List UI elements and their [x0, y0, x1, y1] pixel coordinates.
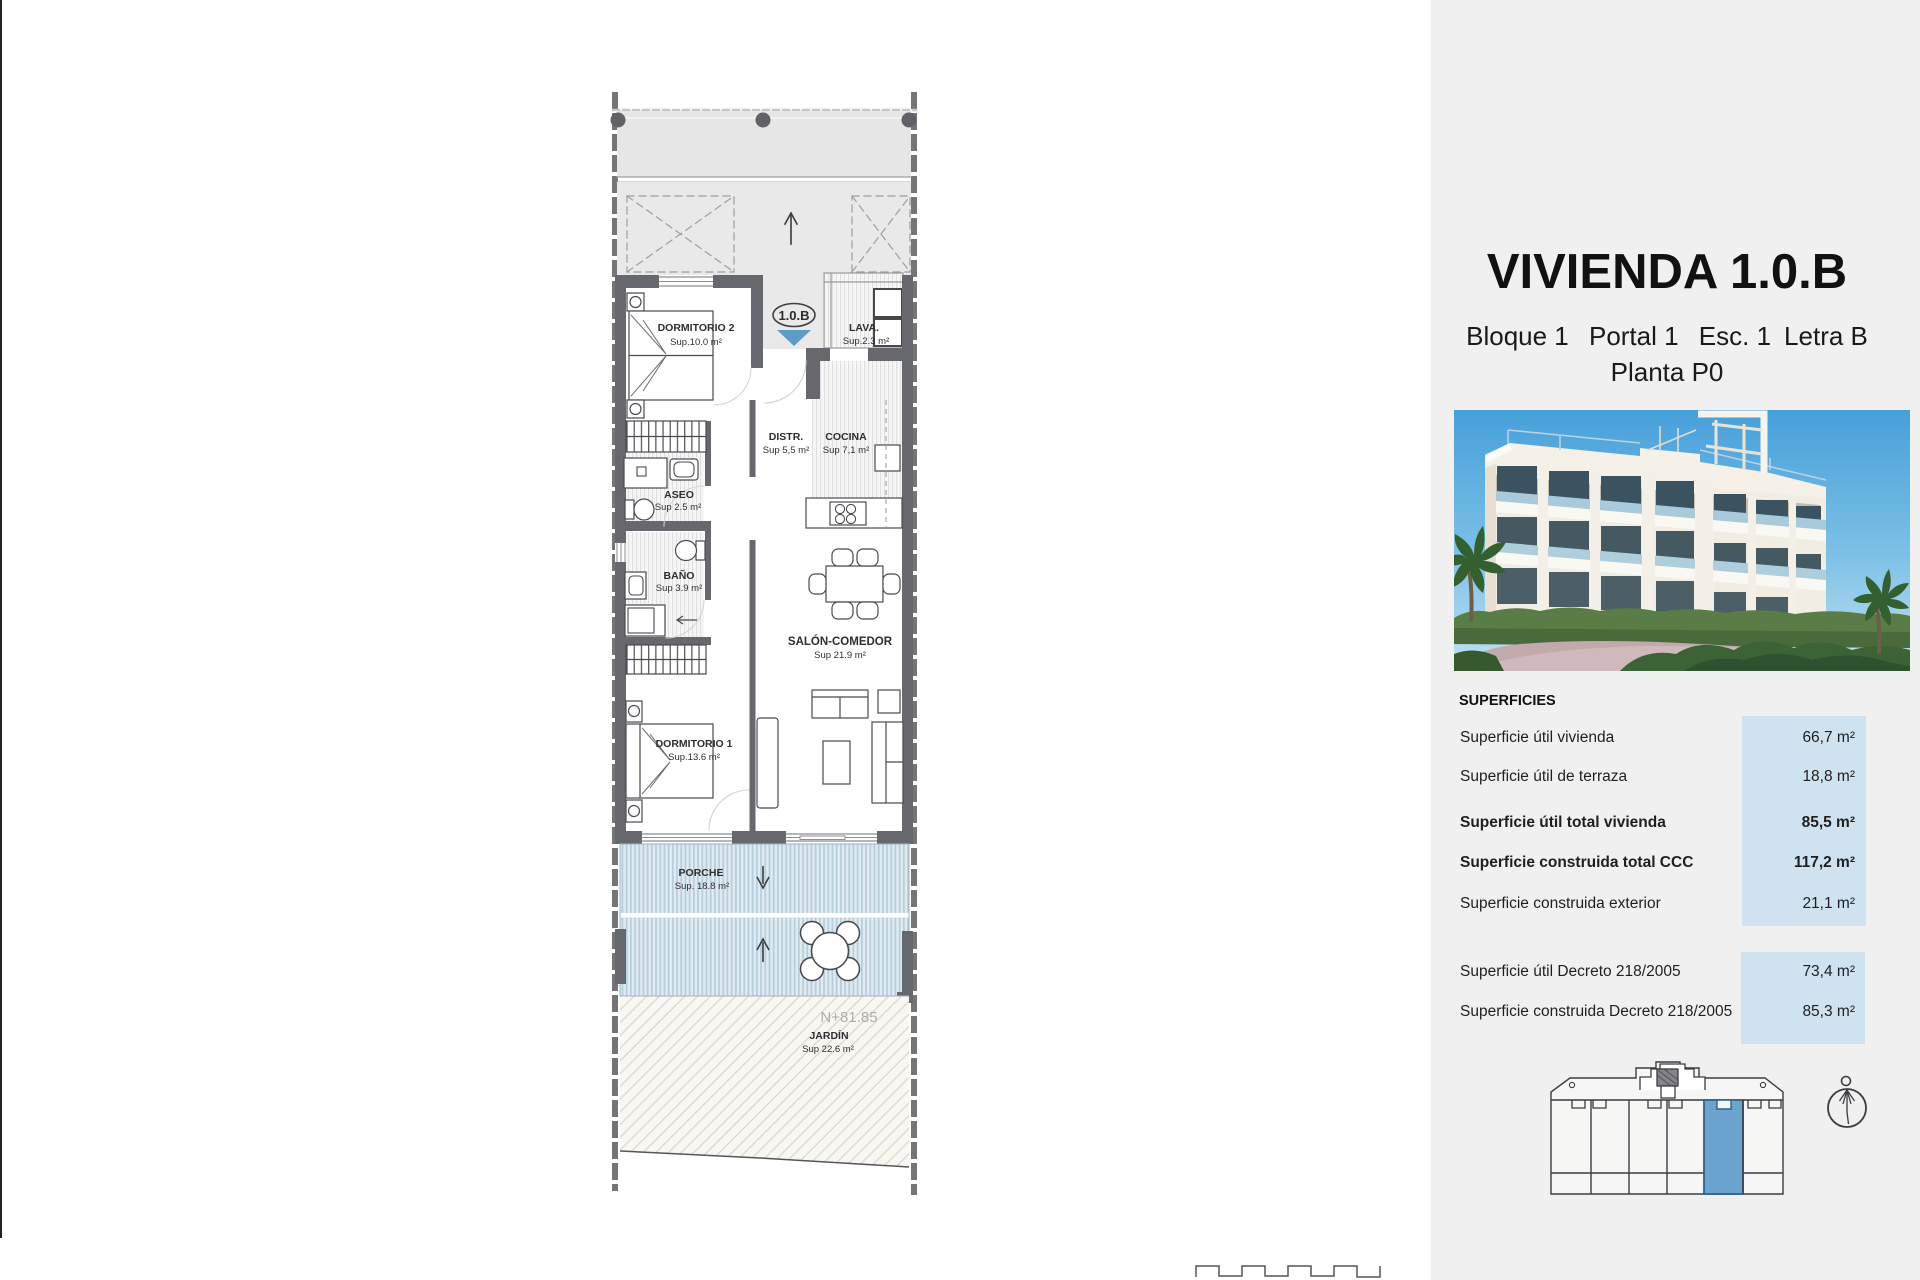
svg-text:Sup. 18.8 m²: Sup. 18.8 m²: [675, 881, 729, 892]
svg-text:ASEO: ASEO: [664, 489, 694, 501]
svg-text:Sup.2.3 m²: Sup.2.3 m²: [843, 336, 889, 347]
svg-text:DISTR.: DISTR.: [769, 431, 804, 443]
svg-text:BAÑO: BAÑO: [664, 569, 695, 582]
svg-text:DORMITORIO 1: DORMITORIO 1: [656, 738, 733, 750]
svg-text:COCINA: COCINA: [825, 431, 867, 443]
svg-text:Sup.10.0 m²: Sup.10.0 m²: [670, 337, 722, 348]
svg-text:Sup 2.5 m²: Sup 2.5 m²: [655, 502, 701, 513]
svg-text:Sup 22.6 m²: Sup 22.6 m²: [802, 1044, 854, 1055]
svg-text:Sup.13.6 m²: Sup.13.6 m²: [668, 752, 720, 763]
svg-text:N+81.85: N+81.85: [820, 1009, 877, 1026]
svg-text:PORCHE: PORCHE: [679, 867, 724, 879]
svg-text:Sup 3.9 m²: Sup 3.9 m²: [656, 583, 702, 594]
svg-text:Sup 5,5 m²: Sup 5,5 m²: [763, 445, 809, 456]
svg-text:SALÓN-COMEDOR: SALÓN-COMEDOR: [788, 635, 893, 648]
svg-text:DORMITORIO 2: DORMITORIO 2: [658, 322, 735, 334]
svg-text:Sup 21.9 m²: Sup 21.9 m²: [814, 650, 866, 661]
svg-text:1.0.B: 1.0.B: [778, 308, 809, 323]
svg-text:Sup 7,1 m²: Sup 7,1 m²: [823, 445, 869, 456]
svg-text:JARDÍN: JARDÍN: [809, 1029, 848, 1042]
svg-text:LAVA.: LAVA.: [849, 322, 879, 334]
